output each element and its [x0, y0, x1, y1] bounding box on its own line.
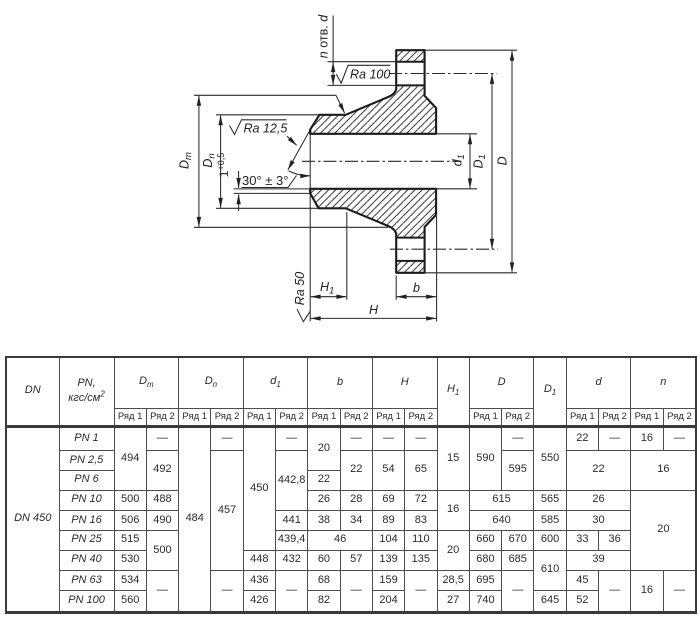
- svg-text:b: b: [413, 281, 420, 295]
- svg-text:n отв. d: n отв. d: [317, 14, 331, 58]
- svg-text:30° ± 3°: 30° ± 3°: [242, 173, 288, 188]
- svg-text:Ra 12,5: Ra 12,5: [244, 122, 288, 136]
- svg-text:Ra 100: Ra 100: [350, 68, 390, 82]
- svg-text:H1: H1: [320, 280, 334, 297]
- svg-text:Dm: Dm: [178, 152, 195, 169]
- svg-text:d1: d1: [451, 154, 468, 166]
- svg-text:D: D: [496, 156, 510, 165]
- svg-text:D1: D1: [472, 154, 489, 168]
- svg-text:1+0,5: 1+0,5: [216, 153, 231, 177]
- svg-text:H: H: [369, 303, 379, 317]
- svg-text:Ra 50: Ra 50: [293, 272, 307, 305]
